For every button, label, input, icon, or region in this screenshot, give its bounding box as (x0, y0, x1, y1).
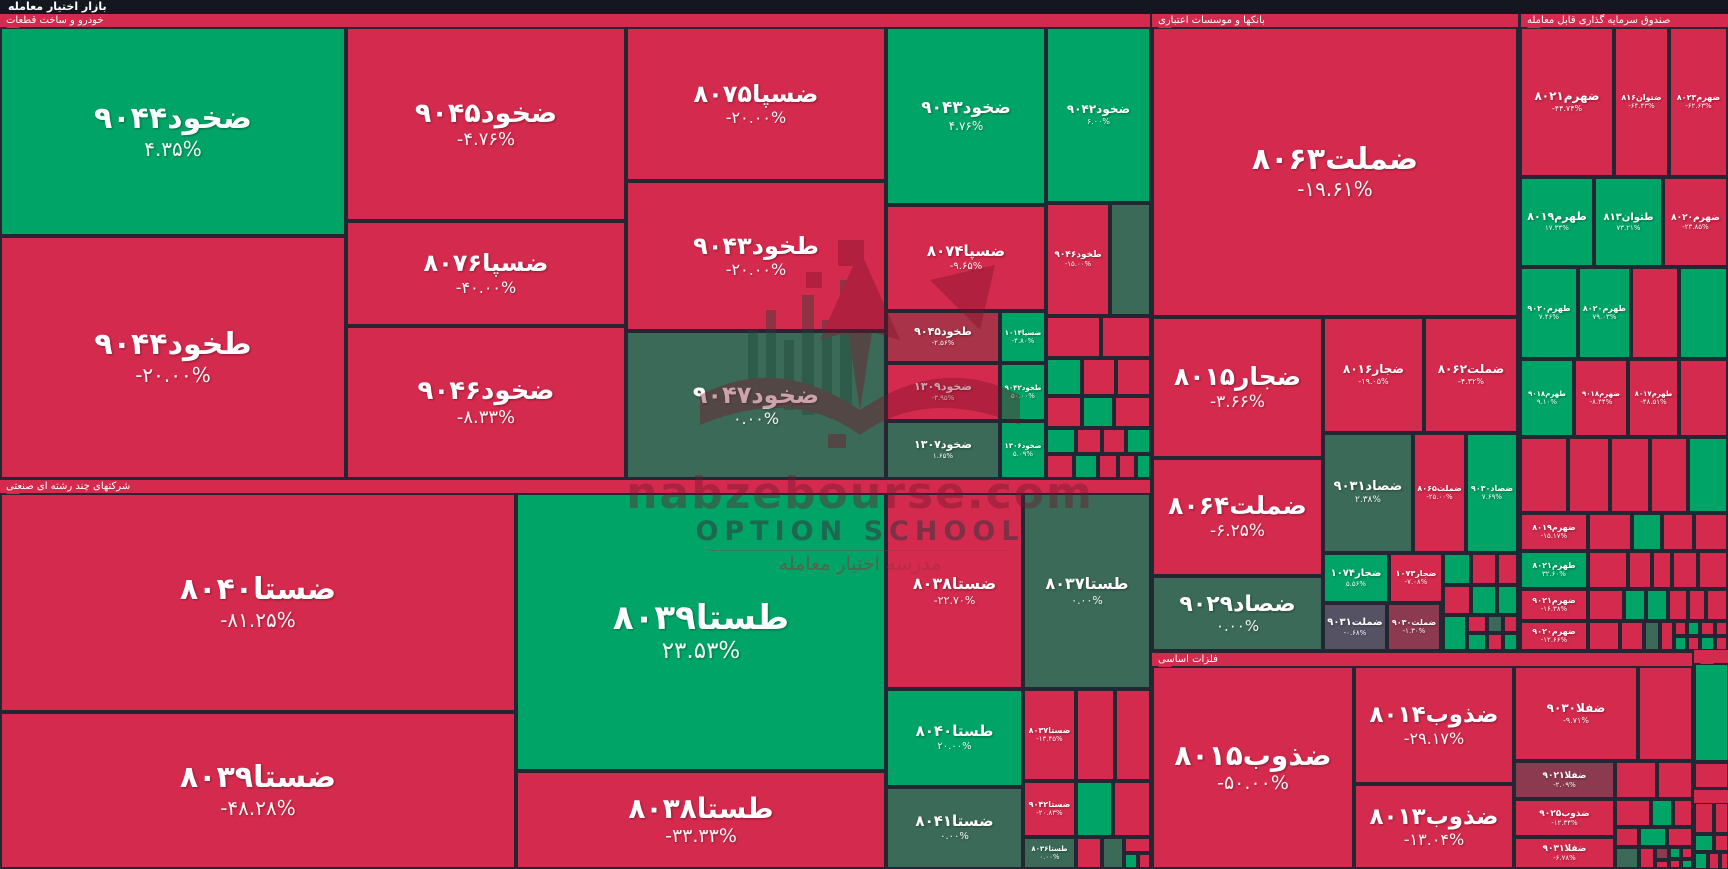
cell-symbol: طهرم۸۰۱۹ (1527, 211, 1586, 224)
treemap-micro-cell[interactable] (1621, 622, 1643, 650)
cell-change: ۰.۰۰% (733, 409, 779, 428)
treemap-micro-cell[interactable] (1699, 552, 1727, 588)
treemap-cell[interactable]: طهرم۹۰۲۰۷.۴۶% (1521, 268, 1577, 358)
cell-change: ۵۰.۰۰% (1011, 392, 1035, 400)
cell-symbol: ضهرم۸۰۲۱ (1534, 90, 1599, 104)
cell-symbol: ضفلا۹۰۳۱ (1543, 844, 1587, 854)
treemap-micro-cell[interactable] (1077, 690, 1114, 780)
cell-change: -۴۸.۵۱% (1640, 398, 1666, 406)
treemap-micro-cell[interactable] (1675, 622, 1686, 635)
treemap-cell[interactable]: ضخود۹۰۴۵-۴.۷۶% (347, 28, 625, 220)
sector-header[interactable] (1694, 650, 1728, 663)
cell-symbol: ضهرم۹۰۱۸ (1582, 390, 1620, 398)
cell-change: -۶۴.۴۳% (1628, 102, 1654, 110)
treemap-micro-cell[interactable] (1688, 622, 1699, 635)
treemap-micro-cell[interactable] (1047, 429, 1075, 453)
treemap-cell[interactable]: ضستا۸۰۴۰-۸۱.۲۵% (1, 494, 515, 711)
treemap-micro-cell[interactable] (1444, 616, 1466, 650)
treemap-cell[interactable]: طهرم۸۰۱۹۱۷.۳۴% (1521, 178, 1593, 266)
cell-symbol: ضسپا۸۰۷۴ (927, 243, 1005, 260)
treemap-micro-cell[interactable] (1695, 853, 1707, 869)
cell-symbol: ضفلا۹۰۲۱ (1543, 771, 1587, 781)
cell-symbol: ضخود۹۰۴۳ (921, 99, 1011, 119)
treemap-cell[interactable]: ضصاد۹۰۳۱۲.۳۸% (1324, 434, 1412, 552)
treemap-micro-cell[interactable] (1103, 838, 1123, 868)
cell-symbol: طستا۸۰۴۰ (916, 723, 994, 740)
cell-symbol: طخود۹۰۴۳ (693, 233, 819, 261)
cell-symbol: طهرم۸۰۱۷ (1635, 390, 1673, 398)
treemap-micro-cell[interactable] (1103, 429, 1125, 453)
treemap-micro-cell[interactable] (1701, 622, 1714, 635)
treemap-cell[interactable]: ضخود۹۰۴۳۴.۷۶% (887, 28, 1045, 204)
treemap-micro-cell[interactable] (1689, 438, 1727, 512)
cell-symbol: ضجار۱۰۷۴ (1331, 568, 1382, 580)
cell-symbol: طخود۹۰۴۵ (914, 326, 972, 339)
cell-change: -۲۰.۰۰% (726, 260, 786, 279)
cell-change: -۸.۴۴% (1590, 398, 1613, 406)
cell-symbol: ضستا۸۰۳۷ (1029, 726, 1071, 735)
treemap-micro-cell[interactable] (1127, 429, 1150, 453)
treemap-cell[interactable]: ضستا۹۰۴۲-۲۰.۸۳% (1024, 782, 1075, 836)
cell-change: -۱۳.۴۵% (1036, 735, 1062, 743)
treemap-micro-cell[interactable] (1656, 848, 1668, 859)
treemap-micro-cell[interactable] (1616, 800, 1650, 826)
treemap-cell[interactable]: طخود۹۰۴۳-۲۰.۰۰% (627, 182, 885, 330)
treemap-micro-cell[interactable] (1639, 667, 1692, 760)
cell-change: -۴.۳۲% (1458, 377, 1484, 387)
cell-change: -۴.۸۰% (1012, 337, 1035, 345)
cell-symbol: طستا۸۰۳۸ (628, 793, 773, 825)
cell-change: -۴۸.۲۸% (220, 796, 296, 820)
cell-symbol: ضملت۹۰۳۱ (1327, 617, 1382, 629)
treemap-cell[interactable] (1111, 204, 1150, 315)
cell-symbol: ضخود۹۰۴۴ (94, 102, 252, 137)
treemap-micro-cell[interactable] (1589, 590, 1623, 620)
treemap-micro-cell[interactable] (1721, 853, 1728, 869)
treemap-micro-cell[interactable] (1521, 438, 1567, 512)
treemap-micro-cell[interactable] (1468, 634, 1486, 650)
cell-symbol: ضستا۸۰۳۹ (180, 761, 336, 796)
treemap-cell[interactable]: طخود۹۰۴۵-۲.۵۶% (887, 312, 999, 362)
treemap-micro-cell[interactable] (1645, 622, 1659, 650)
treemap-micro-cell[interactable] (1488, 616, 1502, 632)
cell-symbol: ضخود۹۰۴۲ (1067, 103, 1130, 117)
treemap-micro-cell[interactable] (1682, 848, 1692, 858)
treemap-micro-cell[interactable] (1083, 359, 1115, 395)
treemap-cell[interactable]: ضستا۸۰۳۸-۲۲.۷۰% (887, 494, 1022, 688)
treemap-cell[interactable]: طخود۹۰۴۶-۱۵.۰۰% (1047, 204, 1109, 315)
treemap-cell[interactable] (1680, 268, 1727, 358)
treemap-micro-cell[interactable] (1611, 438, 1649, 512)
cell-change: -۵۰.۰۰% (1217, 772, 1289, 795)
treemap-cell[interactable]: ضذوب۹۰۲۵-۱۲.۳۴% (1515, 800, 1614, 836)
cell-symbol: ضخود۹۰۴۵ (415, 98, 557, 129)
cell-change: -۴۴.۷۴% (1552, 104, 1582, 114)
cell-symbol: طستا۸۰۳۶ (1031, 845, 1067, 853)
sector-label: خودرو و ساخت قطعات (6, 14, 104, 27)
treemap-micro-cell[interactable] (1099, 455, 1117, 478)
treemap-micro-cell[interactable] (1640, 828, 1666, 846)
cell-symbol: طخود۹۰۴۴ (94, 328, 251, 363)
cell-symbol: ضتوان۸۱۶ (1621, 93, 1661, 102)
treemap-cell[interactable]: ضسپا۸۰۷۵-۲۰.۰۰% (627, 28, 885, 180)
cell-change: ۲۳.۵۳% (662, 638, 741, 666)
cell-change: ۵.۵۶% (1346, 580, 1366, 588)
treemap-micro-cell[interactable] (1715, 803, 1728, 833)
treemap-micro-cell[interactable] (1125, 854, 1137, 868)
treemap-micro-cell[interactable] (1651, 438, 1687, 512)
cell-change: ۰.۰۰% (940, 831, 969, 843)
treemap-micro-cell[interactable] (1707, 590, 1727, 620)
treemap-cell[interactable]: ضخود۹۰۴۷۰.۰۰% (627, 332, 885, 478)
treemap-micro-cell[interactable] (1663, 514, 1693, 550)
treemap-micro-cell[interactable] (1656, 861, 1668, 868)
treemap-cell[interactable]: طستا۸۰۳۷۰.۰۰% (1024, 494, 1150, 688)
cell-change: ۳۲.۶۰% (1542, 570, 1566, 578)
treemap-cell[interactable]: طتوان۸۱۳۷۳.۲۱% (1595, 178, 1662, 266)
cell-change: -۲۰.۸۳% (1036, 809, 1062, 817)
cell-symbol: ضهرم۹۰۲۱ (1532, 596, 1575, 605)
treemap-cell[interactable]: ضخود۹۰۴۶-۸.۳۳% (347, 327, 625, 478)
treemap-micro-cell[interactable] (1653, 552, 1671, 588)
treemap-cell[interactable]: طهرم۸۰۱۷-۴۸.۵۱% (1629, 360, 1678, 436)
treemap-cell[interactable]: ضملت۹۰۳۰-۱.۳۰% (1388, 604, 1440, 650)
treemap-cell[interactable] (1680, 360, 1727, 436)
treemap-micro-cell[interactable] (1116, 690, 1150, 780)
cell-change: -۴.۷۶% (457, 129, 515, 151)
cell-change: -۲.۵۶% (932, 339, 955, 347)
cell-change: -۲۰.۰۰% (726, 108, 786, 127)
cell-symbol: ضجار۸۰۱۵ (1174, 363, 1301, 392)
cell-symbol: ضملت۹۰۳۰ (1392, 618, 1436, 627)
treemap-cell[interactable]: ضملت۸۰۶۴-۶.۲۵% (1153, 459, 1322, 575)
treemap-cell[interactable]: طهرم۸۰۲۰۷۹.۰۳% (1579, 268, 1630, 358)
treemap-micro-cell[interactable] (1115, 397, 1150, 427)
treemap-cell[interactable]: ضسپا۸۰۷۶-۴۰.۰۰% (347, 222, 625, 325)
cell-change: -۹.۷۱% (1563, 716, 1589, 726)
treemap-micro-cell[interactable] (1709, 853, 1719, 869)
cell-symbol: ضستا۹۰۴۲ (1029, 800, 1071, 809)
treemap-cell[interactable]: ضصاد۹۰۲۹۰.۰۰% (1153, 577, 1322, 650)
treemap-micro-cell[interactable] (1077, 838, 1101, 868)
treemap-micro-cell[interactable] (1047, 455, 1073, 478)
cell-change: -۱۳.۰۴% (1404, 830, 1464, 849)
treemap-cell[interactable]: ضهرم۸۰۲۰-۲۳.۸۵% (1664, 178, 1727, 266)
cell-change: -۱.۳۰% (1403, 627, 1426, 635)
treemap-cell[interactable]: ضهرم۹۰۲۰-۱۲.۶۶% (1521, 622, 1587, 650)
treemap-cell[interactable]: طستا۸۰۴۰۲۰.۰۰% (887, 690, 1022, 786)
cell-change: -۲۵.۰۰% (1426, 493, 1452, 501)
treemap-cell[interactable] (1632, 268, 1678, 358)
treemap-micro-cell[interactable] (1658, 762, 1692, 798)
treemap-micro-cell[interactable] (1498, 554, 1517, 584)
cell-symbol: طهرم۹۰۲۰ (1527, 304, 1570, 313)
cell-change: ۱۷.۳۴% (1545, 224, 1569, 232)
treemap-micro-cell[interactable] (1669, 590, 1687, 620)
cell-symbol: ضسپا۸۰۷۵ (693, 81, 818, 109)
treemap-cell[interactable]: ضجار۸۰۱۶-۱۹.۰۵% (1324, 318, 1423, 432)
treemap-micro-cell[interactable] (1125, 838, 1150, 852)
treemap-micro-cell[interactable] (1616, 848, 1638, 868)
cell-change: ۷.۶۹% (1482, 493, 1502, 501)
treemap-cell[interactable]: ضستا۸۰۳۷-۱۳.۴۵% (1024, 690, 1075, 780)
cell-symbol: طخود۹۰۴۲ (1005, 384, 1042, 392)
treemap-cell[interactable]: ضفلا۹۰۳۱-۶.۷۸% (1515, 838, 1614, 868)
treemap-micro-cell[interactable] (1137, 455, 1150, 478)
treemap-cell[interactable]: طهرم۹۰۱۸۹.۱۰% (1521, 360, 1573, 436)
treemap-micro-cell[interactable] (1629, 552, 1651, 588)
treemap-micro-cell[interactable] (1695, 835, 1713, 851)
cell-symbol: ضملت۸۰۶۲ (1438, 363, 1505, 377)
cell-change: -۲۲.۷۰% (934, 594, 976, 607)
cell-symbol: ضملت۸۰۶۴ (1168, 492, 1307, 521)
treemap-micro-cell[interactable] (1119, 455, 1135, 478)
cell-symbol: ضصاد۹۰۳۰ (1471, 484, 1513, 493)
cell-change: -۱۵.۰۰% (1065, 260, 1091, 268)
cell-change: -۱۹.۰۵% (1358, 377, 1388, 387)
treemap-micro-cell[interactable] (1472, 586, 1496, 614)
cell-symbol: ضستا۸۰۳۸ (913, 575, 996, 593)
cell-change: ۹.۱۰% (1537, 398, 1557, 406)
treemap-cell[interactable]: ضخود۹۰۴۲۶.۰۰% (1047, 28, 1150, 202)
cell-symbol: ضستا۸۰۴۱ (915, 813, 993, 830)
treemap-cell[interactable]: طستا۸۰۳۶۰.۰۰% (1024, 838, 1075, 868)
treemap-micro-cell[interactable] (1661, 622, 1673, 650)
cell-symbol: طستا۸۰۳۷ (1046, 575, 1129, 593)
cell-change: -۰.۶۸% (1344, 629, 1367, 637)
cell-change: -۶۲.۶۳% (1685, 102, 1711, 110)
treemap-cell[interactable]: طستا۸۰۳۸-۳۳.۳۳% (517, 772, 885, 868)
cell-symbol: ضذوب۸۰۱۵ (1174, 740, 1331, 772)
treemap-cell[interactable]: ضخود۱۳۰۶۵.۰۹% (1001, 422, 1045, 478)
treemap-cell[interactable]: ضهرم۹۰۱۸-۸.۴۴% (1575, 360, 1627, 436)
treemap-cell[interactable]: ضستا۸۰۴۱۰.۰۰% (887, 788, 1022, 868)
cell-change: ۷۳.۲۱% (1617, 224, 1641, 232)
sector-header[interactable]: صندوق سرمایه گذاری قابل معامله (1521, 14, 1728, 27)
sector-header[interactable]: شرکتهای چند رشته ای صنعتی (0, 480, 1150, 493)
cell-change: ۵.۰۹% (1013, 450, 1033, 458)
cell-symbol: طهرم۸۰۲۰ (1583, 304, 1626, 313)
cell-symbol: ضذوب۹۰۲۵ (1539, 809, 1590, 819)
treemap-micro-cell[interactable] (1695, 514, 1727, 550)
treemap-micro-cell[interactable] (1047, 359, 1081, 395)
cell-symbol: ضجار۱۰۷۳ (1396, 569, 1437, 578)
treemap-micro-cell[interactable] (1504, 634, 1517, 650)
treemap-cell[interactable]: ضخود۹۰۴۴۴.۳۵% (1, 28, 345, 235)
cell-change: ۰.۰۰% (1039, 853, 1059, 861)
treemap-cell[interactable]: ضتوان۸۱۶-۶۴.۴۳% (1615, 28, 1668, 176)
treemap-micro-cell[interactable] (1075, 455, 1097, 478)
cell-change: -۸۱.۲۵% (220, 608, 296, 632)
cell-change: -۹.۶۵% (950, 261, 982, 273)
cell-symbol: ضذوب۸۰۱۴ (1369, 702, 1498, 728)
treemap-micro-cell[interactable] (1647, 590, 1667, 620)
treemap-micro-cell[interactable] (1688, 637, 1699, 650)
treemap-micro-cell[interactable] (1670, 860, 1680, 868)
cell-change: ۷۹.۰۳% (1593, 313, 1617, 321)
treemap-micro-cell[interactable] (1569, 438, 1609, 512)
treemap-cell[interactable]: ضهرم۸۰۲۱-۴۴.۷۴% (1521, 28, 1613, 176)
treemap-micro-cell[interactable] (1640, 848, 1654, 868)
cell-symbol: طستا۸۰۳۹ (613, 599, 789, 638)
treemap-micro-cell[interactable] (1633, 514, 1661, 550)
cell-change: -۸.۳۳% (457, 407, 515, 429)
treemap-cell[interactable]: ضصاد۹۰۳۰۷.۶۹% (1467, 434, 1517, 552)
cell-change: ۴.۳۵% (144, 137, 202, 161)
treemap-cell[interactable]: ضهرم۸۰۲۳-۶۲.۶۳% (1670, 28, 1727, 176)
cell-change: -۳۳.۳۳% (665, 825, 737, 848)
cell-symbol: ضصاد۹۰۳۱ (1334, 480, 1403, 495)
treemap-micro-cell[interactable] (1444, 554, 1470, 584)
cell-change: -۱۲.۳۴% (1551, 819, 1577, 827)
cell-symbol: ضجار۸۰۱۶ (1343, 363, 1404, 377)
treemap-micro-cell[interactable] (1674, 800, 1692, 826)
cell-change: -۲۹.۱۷% (1404, 729, 1464, 748)
treemap-cell[interactable]: طخود۹۰۴۴-۲۰.۰۰% (1, 237, 345, 478)
treemap-cell[interactable]: ضذوب۸۰۱۴-۲۹.۱۷% (1355, 667, 1513, 783)
treemap-micro-cell[interactable] (1117, 359, 1150, 395)
treemap-cell[interactable]: ضملت۸۰۶۳-۱۹.۶۱% (1153, 28, 1517, 316)
treemap-cell[interactable]: ضذوب۸۰۱۳-۱۳.۰۴% (1355, 785, 1513, 868)
treemap-cell[interactable]: طهرم۸۰۲۱۳۲.۶۰% (1521, 552, 1587, 588)
treemap-micro-cell[interactable] (1504, 616, 1517, 632)
page-title: بازار اختیار معامله (8, 0, 107, 14)
cell-symbol: ضملت۸۰۶۵ (1417, 484, 1461, 493)
treemap-cell[interactable]: ضملت۸۰۶۲-۴.۳۲% (1425, 318, 1517, 432)
treemap-micro-cell[interactable] (1668, 828, 1692, 846)
treemap-micro-cell[interactable] (1047, 317, 1100, 357)
treemap-cell[interactable]: ضفلا۹۰۳۰-۹.۷۱% (1515, 667, 1637, 760)
treemap-micro-cell[interactable] (1139, 854, 1150, 868)
cell-symbol: ضخود۱۳۰۶ (1005, 442, 1042, 450)
treemap-micro-cell[interactable] (1716, 622, 1727, 635)
cell-symbol: ضفلا۹۰۳۰ (1547, 702, 1606, 716)
treemap-cell[interactable]: ضهرم۹۰۲۱-۱۶.۳۸% (1521, 590, 1587, 620)
cell-symbol: ضذوب۸۰۱۳ (1369, 804, 1498, 830)
cell-change: ۱.۶۵% (933, 452, 953, 460)
cell-symbol: ضهرم۸۰۱۹ (1532, 523, 1575, 532)
cell-symbol: ضهرم۹۰۲۰ (1532, 627, 1575, 636)
treemap-cell[interactable]: ضستا۸۰۳۹-۴۸.۲۸% (1, 713, 515, 868)
cell-symbol: ضملت۸۰۶۳ (1252, 143, 1418, 178)
cell-symbol: طتوان۸۱۳ (1603, 212, 1653, 224)
cell-symbol: ضستا۸۰۴۰ (180, 573, 336, 608)
cell-change: -۲۳.۸۵% (1682, 223, 1708, 231)
treemap-micro-cell[interactable] (1616, 762, 1656, 798)
cell-change: -۶.۲۵% (1210, 521, 1265, 541)
treemap-cell[interactable]: ضفلا۹۰۲۱-۲.۰۹% (1515, 762, 1614, 798)
treemap-micro-cell[interactable] (1673, 552, 1697, 588)
cell-symbol: ضهرم۸۰۲۰ (1671, 213, 1720, 223)
treemap-micro-cell[interactable] (1625, 590, 1645, 620)
treemap-micro-cell[interactable] (1589, 622, 1619, 650)
treemap-micro-cell[interactable] (1616, 828, 1638, 846)
cell-change: ۲۰.۰۰% (937, 741, 971, 753)
treemap-cell[interactable]: ضجار۱۰۷۳-۷.۰۸% (1390, 554, 1442, 602)
cell-change: -۳.۹۵% (932, 394, 955, 402)
treemap-micro-cell[interactable] (1716, 637, 1727, 650)
app-header: بازار اختیار معامله (0, 0, 1728, 14)
treemap-micro-cell[interactable] (1083, 397, 1113, 427)
treemap-cell[interactable]: ضهرم۸۰۱۹-۱۵.۱۷% (1521, 514, 1587, 550)
treemap-cell[interactable]: ضسپا۱۰۱۴-۴.۸۰% (1001, 312, 1045, 362)
treemap-micro-cell[interactable] (1689, 590, 1705, 620)
treemap-cell[interactable]: ضخود۱۳۰۹-۳.۹۵% (887, 364, 999, 420)
treemap-micro-cell[interactable] (1498, 586, 1517, 614)
cell-change: -۷.۰۸% (1405, 578, 1428, 586)
treemap-micro-cell[interactable] (1675, 637, 1686, 650)
cell-symbol: طهرم۸۰۲۱ (1532, 561, 1575, 570)
treemap-micro-cell[interactable] (1695, 803, 1713, 833)
treemap-micro-cell[interactable] (1701, 637, 1714, 650)
cell-change: -۲۰.۰۰% (135, 363, 211, 387)
treemap-cell[interactable]: ضجار۱۰۷۴۵.۵۶% (1324, 554, 1388, 602)
treemap-micro-cell[interactable] (1715, 835, 1728, 851)
treemap-cell[interactable]: طستا۸۰۳۹۲۳.۵۳% (517, 494, 885, 770)
cell-change: -۴۰.۰۰% (456, 278, 516, 297)
treemap-cell[interactable]: طخود۹۰۴۲۵۰.۰۰% (1001, 364, 1045, 420)
cell-symbol: ضخود۱۳۰۹ (914, 381, 972, 394)
treemap-micro-cell[interactable] (1488, 634, 1502, 650)
treemap-micro-cell[interactable] (1670, 848, 1680, 858)
sector-label: فلزات اساسی (1158, 653, 1218, 666)
treemap-cell[interactable]: ضجار۸۰۱۵-۳.۶۶% (1153, 318, 1322, 457)
cell-change: ۲.۳۸% (1355, 495, 1381, 506)
treemap-micro-cell[interactable] (1102, 317, 1150, 357)
treemap-cell[interactable]: ضملت۸۰۶۵-۲۵.۰۰% (1414, 434, 1465, 552)
cell-change: -۶.۷۸% (1553, 854, 1576, 862)
treemap-micro-cell[interactable] (1444, 586, 1470, 614)
treemap-cell[interactable]: ضذوب۸۰۱۵-۵۰.۰۰% (1153, 667, 1353, 868)
cell-change: ۶.۰۰% (1087, 117, 1110, 127)
treemap-micro-cell[interactable] (1114, 782, 1150, 836)
cell-symbol: ضخود۹۰۴۶ (418, 377, 555, 407)
options-market-treemap: بازار اختیار معامله خودرو و ساخت قطعاتضخ… (0, 0, 1728, 869)
cell-symbol: ضخود۱۳۰۷ (914, 439, 972, 452)
treemap-micro-cell[interactable] (1077, 429, 1101, 453)
treemap-micro-cell[interactable] (1589, 552, 1627, 588)
cell-change: -۱۶.۳۸% (1541, 605, 1567, 613)
cell-symbol: ضسپا۱۰۱۴ (1005, 329, 1041, 337)
cell-change: ۷.۴۶% (1539, 313, 1559, 321)
treemap-cell[interactable]: ضخود۱۳۰۷۱.۶۵% (887, 422, 999, 478)
cell-change: -۱۹.۶۱% (1297, 177, 1373, 201)
cell-change: -۱۵.۱۷% (1541, 532, 1567, 540)
treemap-micro-cell[interactable] (1472, 554, 1496, 584)
treemap-micro-cell[interactable] (1589, 514, 1631, 550)
treemap-cell[interactable]: ضسپا۸۰۷۴-۹.۶۵% (887, 206, 1045, 310)
sector-header[interactable]: فلزات اساسی (1152, 653, 1692, 666)
treemap-cell[interactable]: ضملت۹۰۳۱-۰.۶۸% (1324, 604, 1386, 650)
cell-symbol: طهرم۹۰۱۸ (1528, 390, 1566, 398)
treemap-micro-cell[interactable] (1695, 664, 1728, 761)
cell-change: ۴.۷۶% (949, 119, 984, 133)
treemap-micro-cell[interactable] (1047, 397, 1081, 427)
cell-symbol: ضسپا۸۰۷۶ (423, 250, 548, 278)
cell-change: -۱۲.۶۶% (1541, 636, 1567, 644)
treemap-micro-cell[interactable] (1682, 860, 1692, 868)
treemap-micro-cell[interactable] (1468, 616, 1486, 632)
treemap-micro-cell[interactable] (1695, 763, 1728, 788)
sector-header[interactable]: خودرو و ساخت قطعات (0, 14, 1150, 27)
treemap-micro-cell[interactable] (1652, 800, 1672, 826)
cell-symbol: ضهرم۸۰۲۳ (1677, 93, 1720, 102)
cell-symbol: ضصاد۹۰۲۹ (1179, 592, 1295, 617)
cell-symbol: ضخود۹۰۴۷ (693, 382, 819, 410)
sector-header[interactable] (1694, 790, 1728, 803)
sector-header[interactable]: بانکها و موسسات اعتباری (1152, 14, 1518, 27)
treemap-micro-cell[interactable] (1077, 782, 1112, 836)
